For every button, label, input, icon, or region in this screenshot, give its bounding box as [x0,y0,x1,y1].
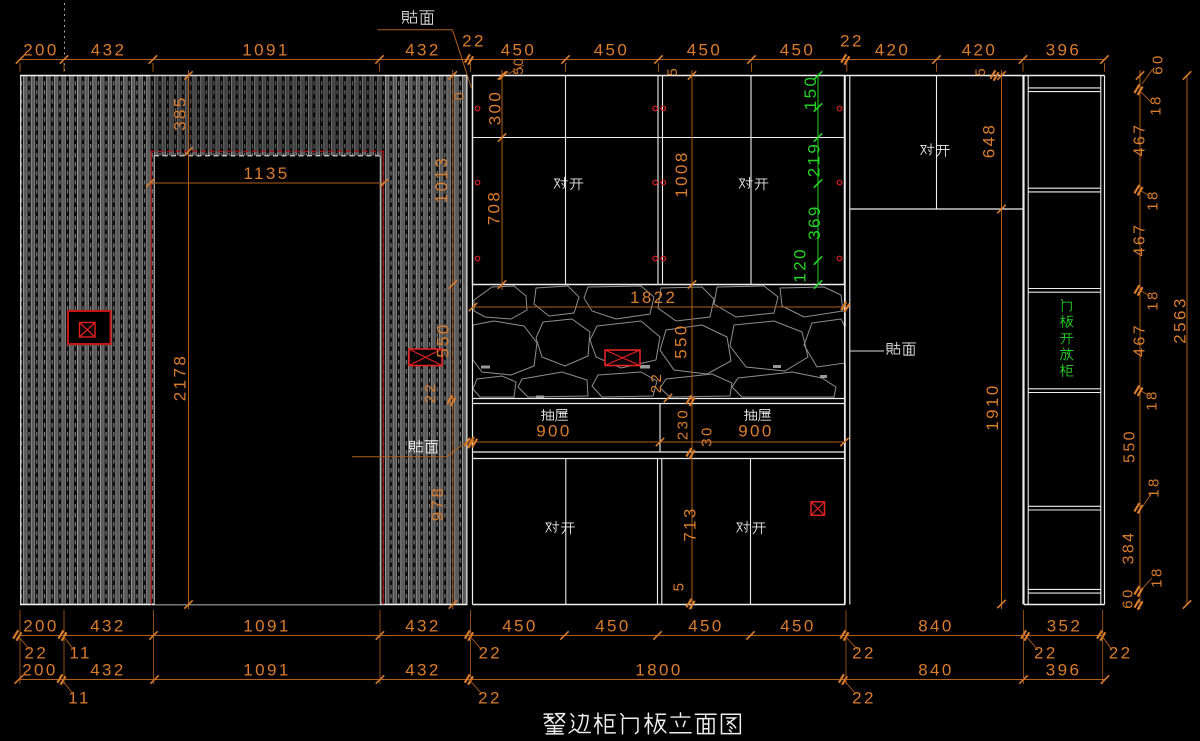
svg-text:840: 840 [918,661,954,680]
svg-text:450: 450 [780,617,816,636]
svg-text:420: 420 [875,41,911,60]
svg-text:18: 18 [1145,189,1162,211]
svg-text:648: 648 [980,123,999,159]
svg-text:22: 22 [840,32,864,51]
svg-text:708: 708 [485,190,504,226]
svg-text:150: 150 [801,75,820,111]
svg-text:900: 900 [536,421,572,440]
svg-text:22: 22 [478,644,502,663]
svg-text:30: 30 [699,425,716,447]
svg-text:432: 432 [90,617,126,636]
svg-text:396: 396 [1046,661,1082,680]
svg-text:432: 432 [90,661,126,680]
svg-text:300: 300 [486,90,505,126]
svg-text:352: 352 [1047,617,1083,636]
svg-text:450: 450 [594,41,630,60]
svg-text:432: 432 [405,617,441,636]
svg-text:120: 120 [791,247,810,283]
svg-text:5: 5 [972,66,988,76]
svg-text:432: 432 [91,41,127,60]
svg-text:22: 22 [462,32,486,51]
svg-text:200: 200 [23,617,59,636]
svg-text:1091: 1091 [243,661,290,680]
svg-text:840: 840 [918,617,954,636]
svg-text:385: 385 [171,95,190,131]
svg-text:18: 18 [1145,289,1162,311]
svg-text:369: 369 [805,204,824,240]
svg-text:1008: 1008 [672,150,691,197]
svg-text:432: 432 [405,41,441,60]
svg-text:467: 467 [1132,323,1149,357]
svg-text:450: 450 [688,617,724,636]
svg-text:450: 450 [687,41,723,60]
svg-text:60: 60 [1150,53,1167,75]
svg-text:1091: 1091 [243,617,290,636]
svg-text:450: 450 [595,617,631,636]
svg-text:900: 900 [738,421,774,440]
svg-text:22: 22 [478,689,502,708]
svg-text:0: 0 [451,90,467,100]
svg-text:550: 550 [672,323,691,359]
svg-text:1800: 1800 [635,661,682,680]
svg-text:22: 22 [1109,644,1133,663]
svg-text:22: 22 [422,382,439,404]
svg-text:5: 5 [671,581,688,592]
svg-text:219: 219 [805,142,824,178]
svg-text:1822: 1822 [630,288,677,307]
svg-text:22: 22 [648,372,665,394]
svg-text:18: 18 [1146,476,1163,498]
svg-text:432: 432 [405,661,441,680]
svg-text:18: 18 [1148,94,1165,116]
svg-text:18: 18 [1149,566,1166,588]
svg-text:5: 5 [664,66,680,76]
svg-text:60: 60 [1120,587,1137,609]
svg-text:396: 396 [1046,41,1082,60]
svg-text:11: 11 [68,689,90,708]
svg-text:22: 22 [852,644,876,663]
svg-text:230: 230 [675,408,692,440]
svg-text:384: 384 [1121,531,1138,565]
svg-text:450: 450 [502,617,538,636]
svg-text:50: 50 [510,57,526,75]
svg-text:1910: 1910 [983,383,1002,430]
svg-text:2563: 2563 [1171,296,1190,343]
svg-text:200: 200 [22,661,58,680]
svg-text:978: 978 [428,486,447,522]
svg-text:11: 11 [69,644,91,663]
svg-text:467: 467 [1132,223,1149,257]
svg-text:1135: 1135 [243,164,289,183]
svg-text:450: 450 [780,41,816,60]
svg-text:713: 713 [681,506,700,542]
svg-text:550: 550 [434,322,453,358]
svg-text:1091: 1091 [242,41,289,60]
svg-text:200: 200 [23,41,59,60]
svg-text:467: 467 [1132,123,1149,157]
svg-text:420: 420 [962,41,998,60]
svg-text:18: 18 [1144,389,1161,411]
svg-text:2178: 2178 [171,354,190,401]
svg-text:22: 22 [852,689,876,708]
svg-text:450: 450 [501,41,537,60]
svg-text:1013: 1013 [432,156,451,203]
svg-text:550: 550 [1122,429,1139,463]
